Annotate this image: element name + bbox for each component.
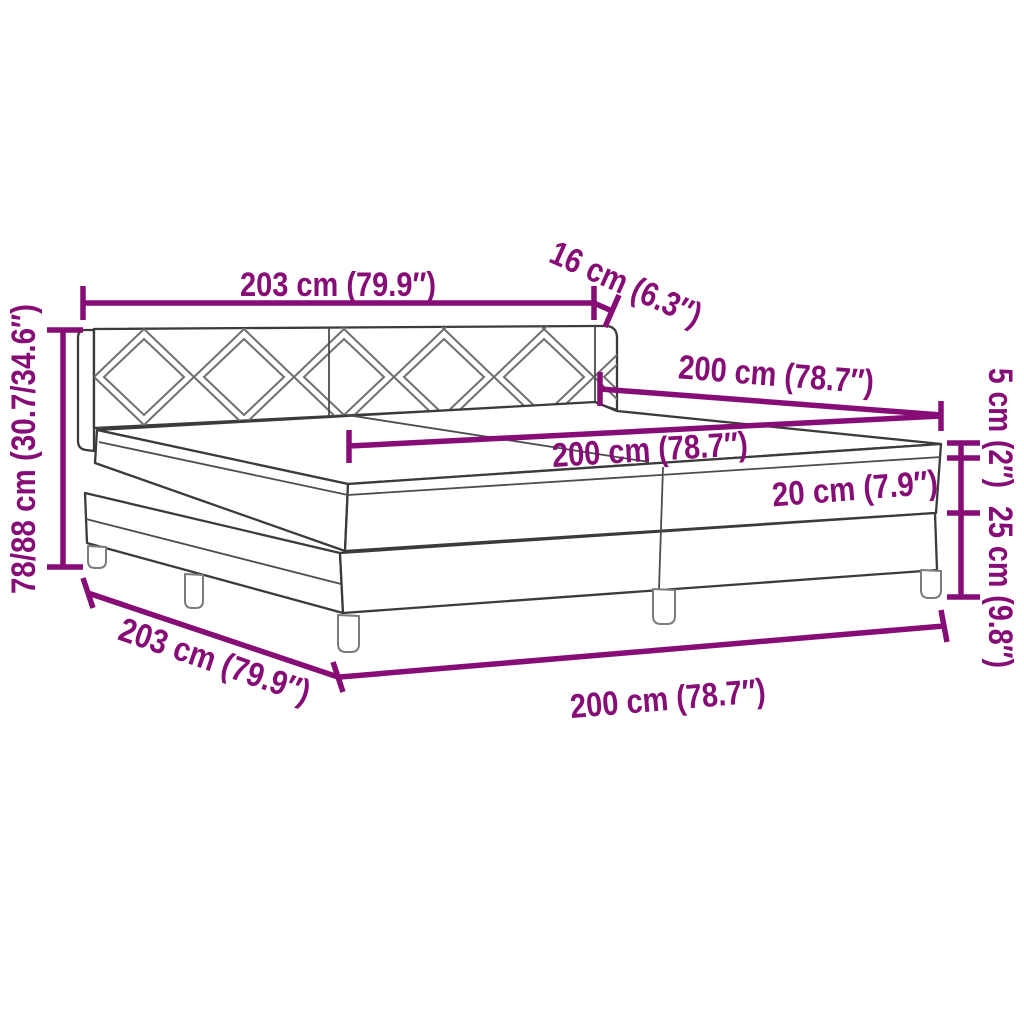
headboard-left-wing [78, 330, 94, 451]
dim-label-base-height: 25 cm (9.8″) [981, 506, 1019, 668]
dim-line-length-bottom [340, 610, 947, 677]
dim-label-headboard-width: 203 cm (79.9″) [240, 266, 436, 304]
bed-dimension-diagram: 203 cm (79.9″) 16 cm (6.3″) 200 cm (78.7… [0, 0, 1024, 1024]
dim-label-headboard-depth: 16 cm (6.3″) [544, 234, 707, 335]
dim-label-topper-height: 5 cm (2″) [981, 368, 1019, 488]
bed-leg [88, 546, 106, 568]
dim-line-topper-and-base-height [947, 443, 980, 597]
bed-leg [338, 615, 359, 652]
bed-leg [185, 574, 203, 608]
dim-label-total-height: 78/88 cm (30.7/34.6″) [5, 304, 43, 594]
diagram-canvas: 203 cm (79.9″) 16 cm (6.3″) 200 cm (78.7… [0, 0, 1024, 1024]
bed-leg [921, 570, 941, 598]
dim-label-length-bottom: 200 cm (78.7″) [569, 672, 767, 726]
dim-label-length-top: 200 cm (78.7″) [677, 348, 875, 401]
bed-leg [653, 589, 675, 624]
